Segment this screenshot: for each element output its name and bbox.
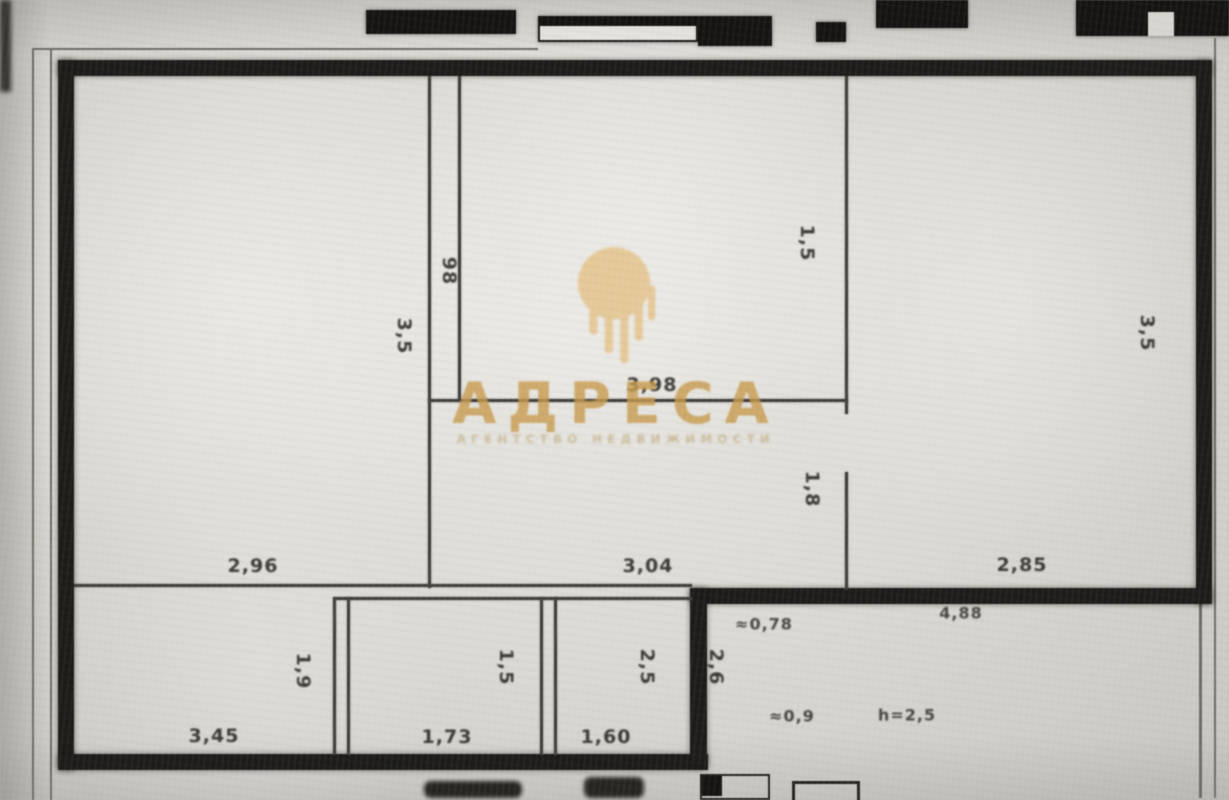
photo-paper-background: 2,96 3,04 2,85 3,98 3,45 1,73 1,60 ≈0,78… [0, 0, 1229, 800]
dim-label-bottom-left-room-height: 1,9 [292, 653, 314, 690]
watermark-brand: АДРЕСА [452, 371, 780, 437]
dim-label-middle-wall-height: 1,5 [796, 225, 818, 262]
page-edge-line [50, 48, 52, 800]
outer-wall-bottom [58, 754, 708, 770]
dim-label-outside-height: 2,6 [705, 649, 727, 686]
partition-bottom-rooms-top [74, 584, 692, 587]
ink-smudge [584, 777, 644, 798]
corridor-line [1199, 604, 1202, 798]
watermark-dome-drip-logo-icon [560, 246, 668, 374]
adjacent-plan-fragment-gap [1148, 12, 1174, 36]
partition-bottom-divider-1a [333, 597, 336, 755]
outer-wall-left [58, 60, 74, 770]
partition-right-room-left-lower [845, 472, 848, 590]
dim-label-door-height: 1,8 [801, 471, 823, 508]
adjacent-plan-fragment [538, 16, 698, 42]
partition-bottom-divider-2b [554, 597, 557, 755]
outer-wall-top [58, 60, 1212, 76]
partition-shaft-right [458, 76, 461, 402]
dim-label-outside-small-width: ≈0,9 [769, 707, 815, 726]
outer-wall-right [1196, 60, 1212, 604]
partition-closets-front [336, 597, 692, 600]
page-edge-line [1214, 38, 1216, 798]
adjacent-plan-fragment [792, 781, 860, 800]
photo-corner-shadow [0, 0, 11, 92]
adjacent-plan-fragment [698, 16, 772, 46]
partition-left-room-right [428, 76, 431, 588]
partition-right-room-left-upper [845, 76, 848, 414]
dim-label-bottom-middle-room-height: 1,5 [495, 649, 517, 686]
dim-label-bottom-left-room-width: 3,45 [189, 725, 240, 747]
dim-label-left-room-width: 2,96 [228, 555, 279, 577]
adjacent-plan-fragment [816, 22, 846, 42]
dim-label-ceiling-height: h=2,5 [878, 706, 936, 725]
dim-label-outside-offset: ≈0,78 [735, 615, 793, 634]
dim-label-hall-width: 3,04 [623, 555, 674, 577]
watermark-tagline: АГЕНТСТВО НЕДВИЖИМОСТИ [457, 432, 775, 446]
adjacent-plan-fragment [366, 10, 516, 34]
partition-bottom-divider-1b [347, 597, 350, 755]
dim-label-right-room-width: 2,85 [997, 554, 1048, 576]
ink-smudge [424, 781, 522, 798]
dim-label-bottom-middle-room-width: 1,73 [422, 726, 473, 748]
dim-label-outside-width: 4,88 [939, 604, 982, 623]
dim-label-bottom-right-room-width: 1,60 [581, 726, 632, 748]
dim-label-bottom-right-room-height: 2,5 [636, 649, 658, 686]
dim-label-left-room-height: 3,5 [393, 318, 415, 355]
adjacent-plan-fragment [702, 776, 722, 796]
floorplan-screenshot: 2,96 3,04 2,85 3,98 3,45 1,73 1,60 ≈0,78… [0, 0, 1229, 800]
adjacent-plan-fragment [876, 0, 968, 28]
outer-wall-bottom-right-horizontal [690, 588, 1212, 604]
dim-label-shaft-width: 98 [438, 257, 460, 285]
dim-label-right-room-height: 3,5 [1136, 315, 1158, 352]
partition-bottom-divider-2a [540, 597, 543, 755]
page-edge-line [32, 48, 34, 800]
page-edge-line [32, 48, 538, 50]
